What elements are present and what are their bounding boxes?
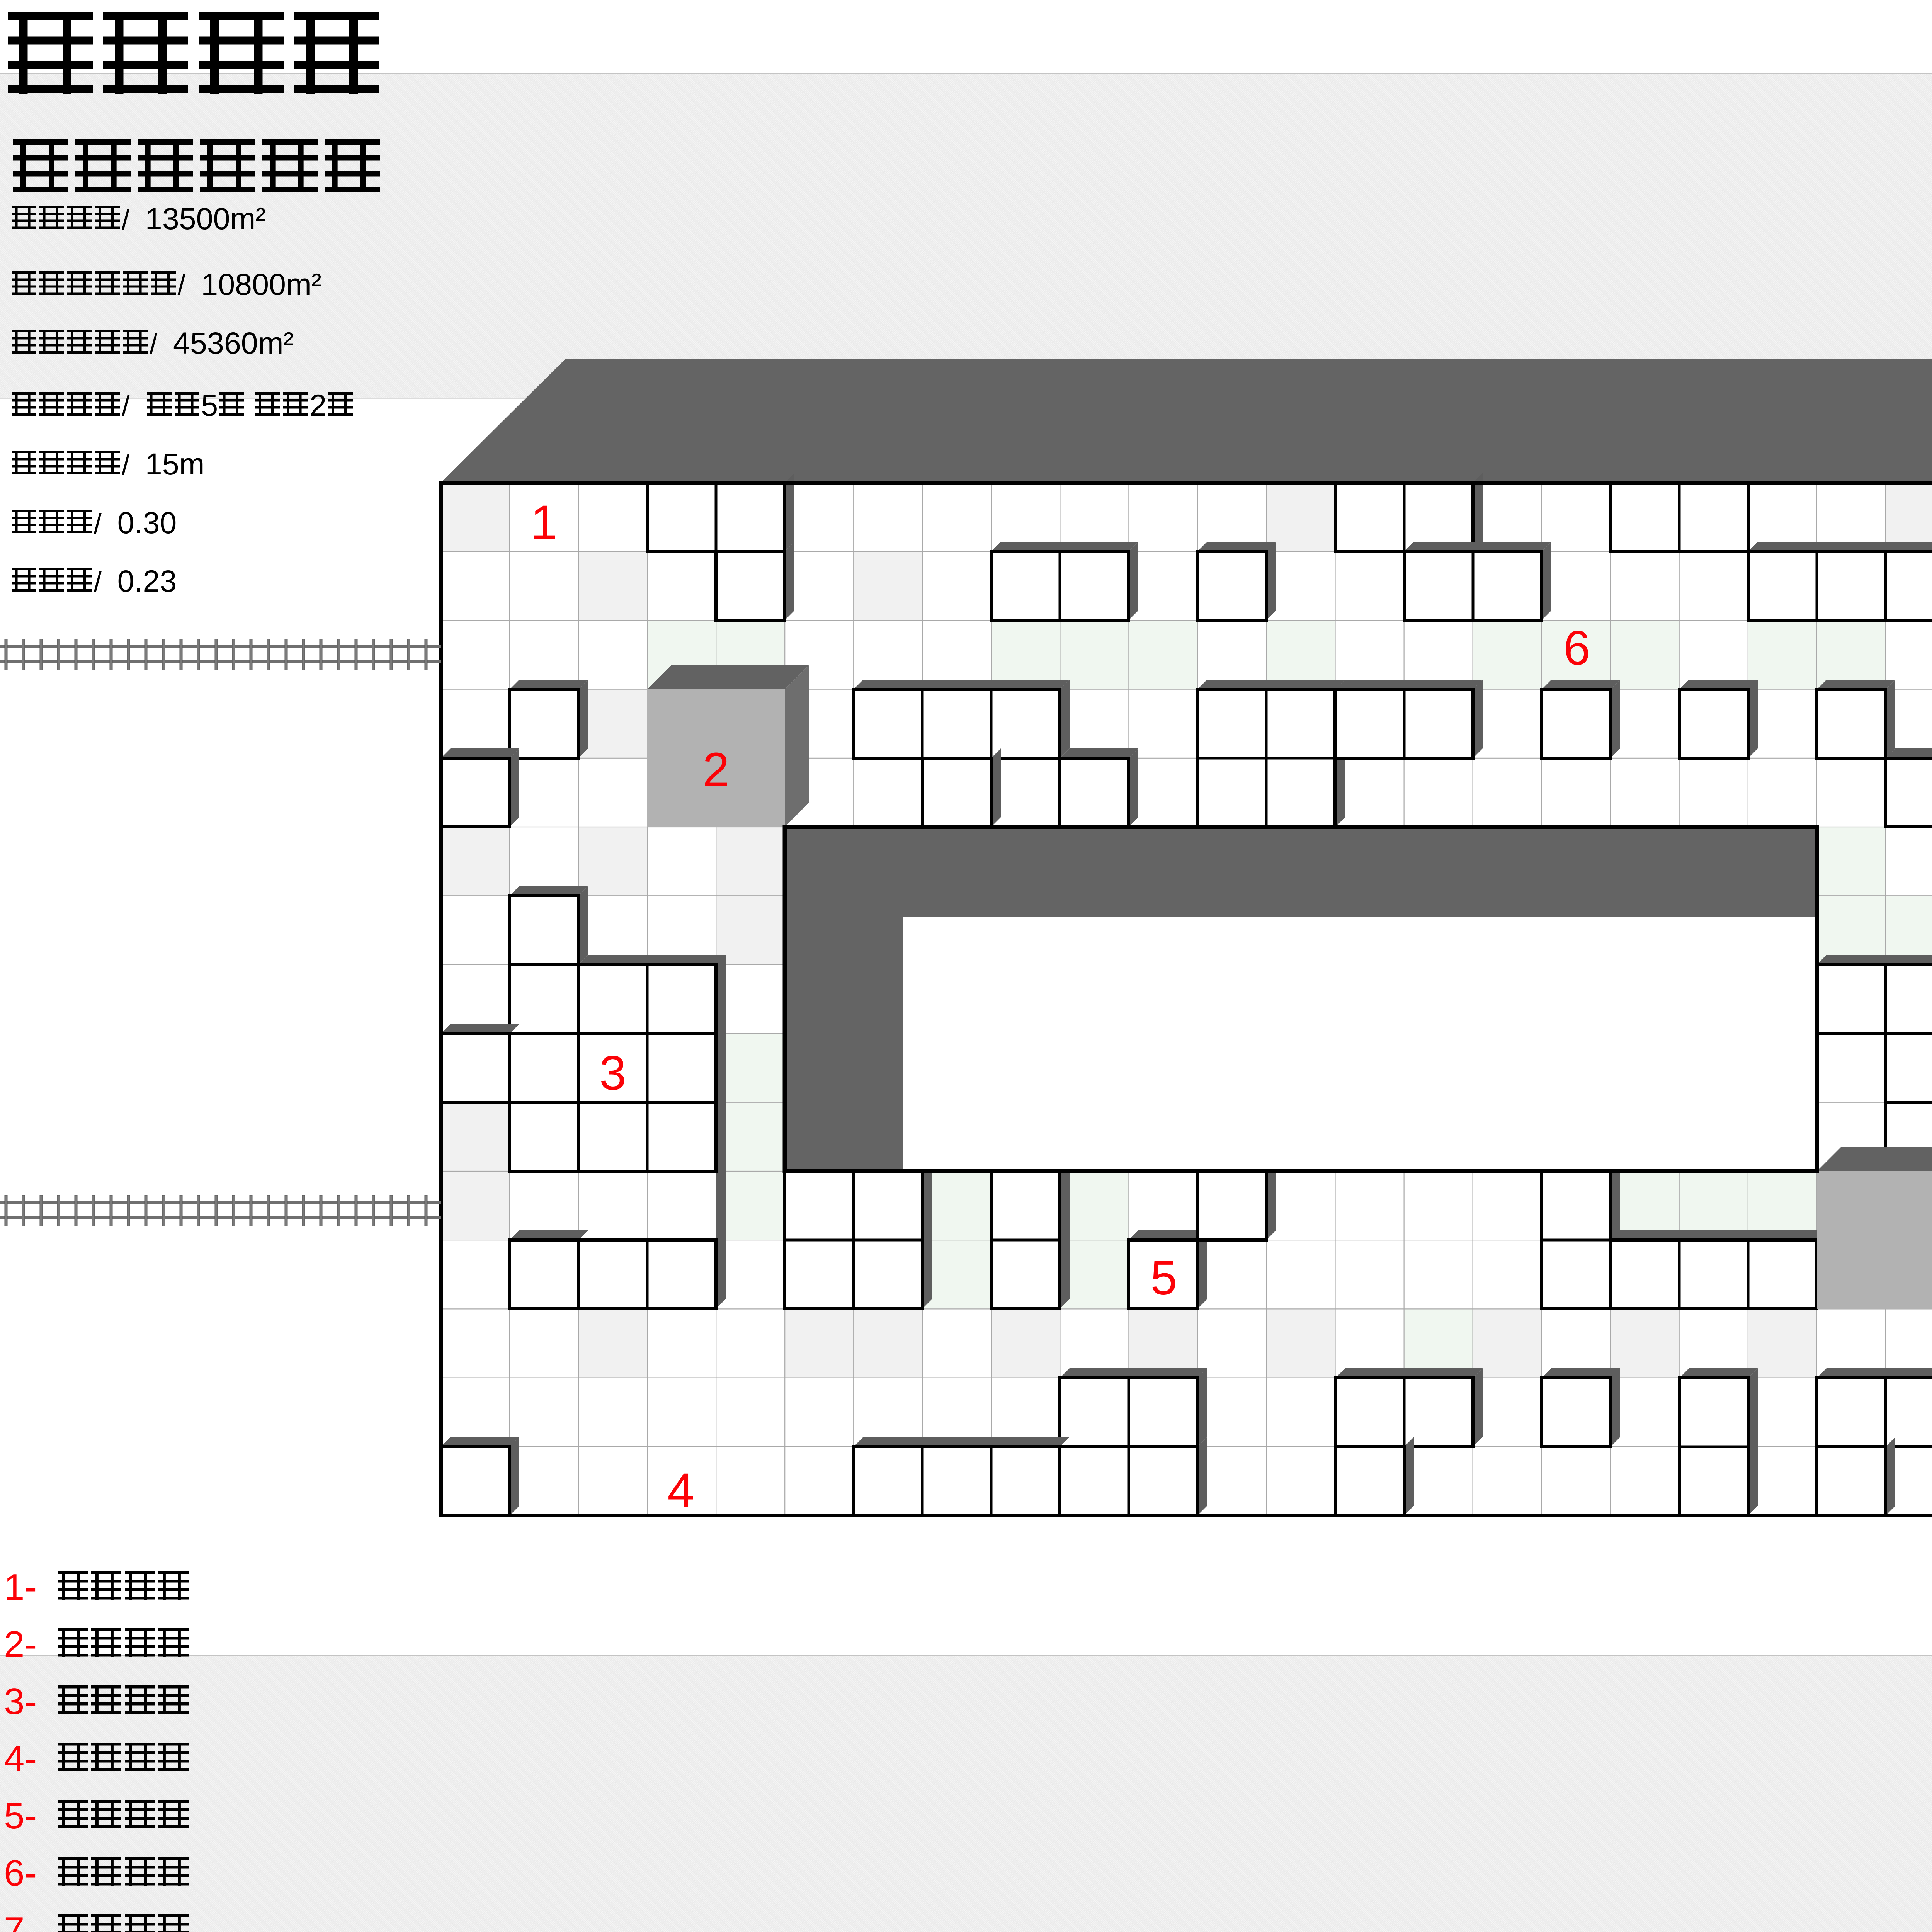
svg-text:4: 4 — [667, 1464, 694, 1517]
svg-text:2: 2 — [702, 743, 730, 797]
svg-text:1: 1 — [531, 496, 558, 549]
svg-text:5: 5 — [1150, 1251, 1177, 1305]
svg-text:3: 3 — [599, 1046, 626, 1100]
svg-text:6: 6 — [1563, 621, 1590, 675]
